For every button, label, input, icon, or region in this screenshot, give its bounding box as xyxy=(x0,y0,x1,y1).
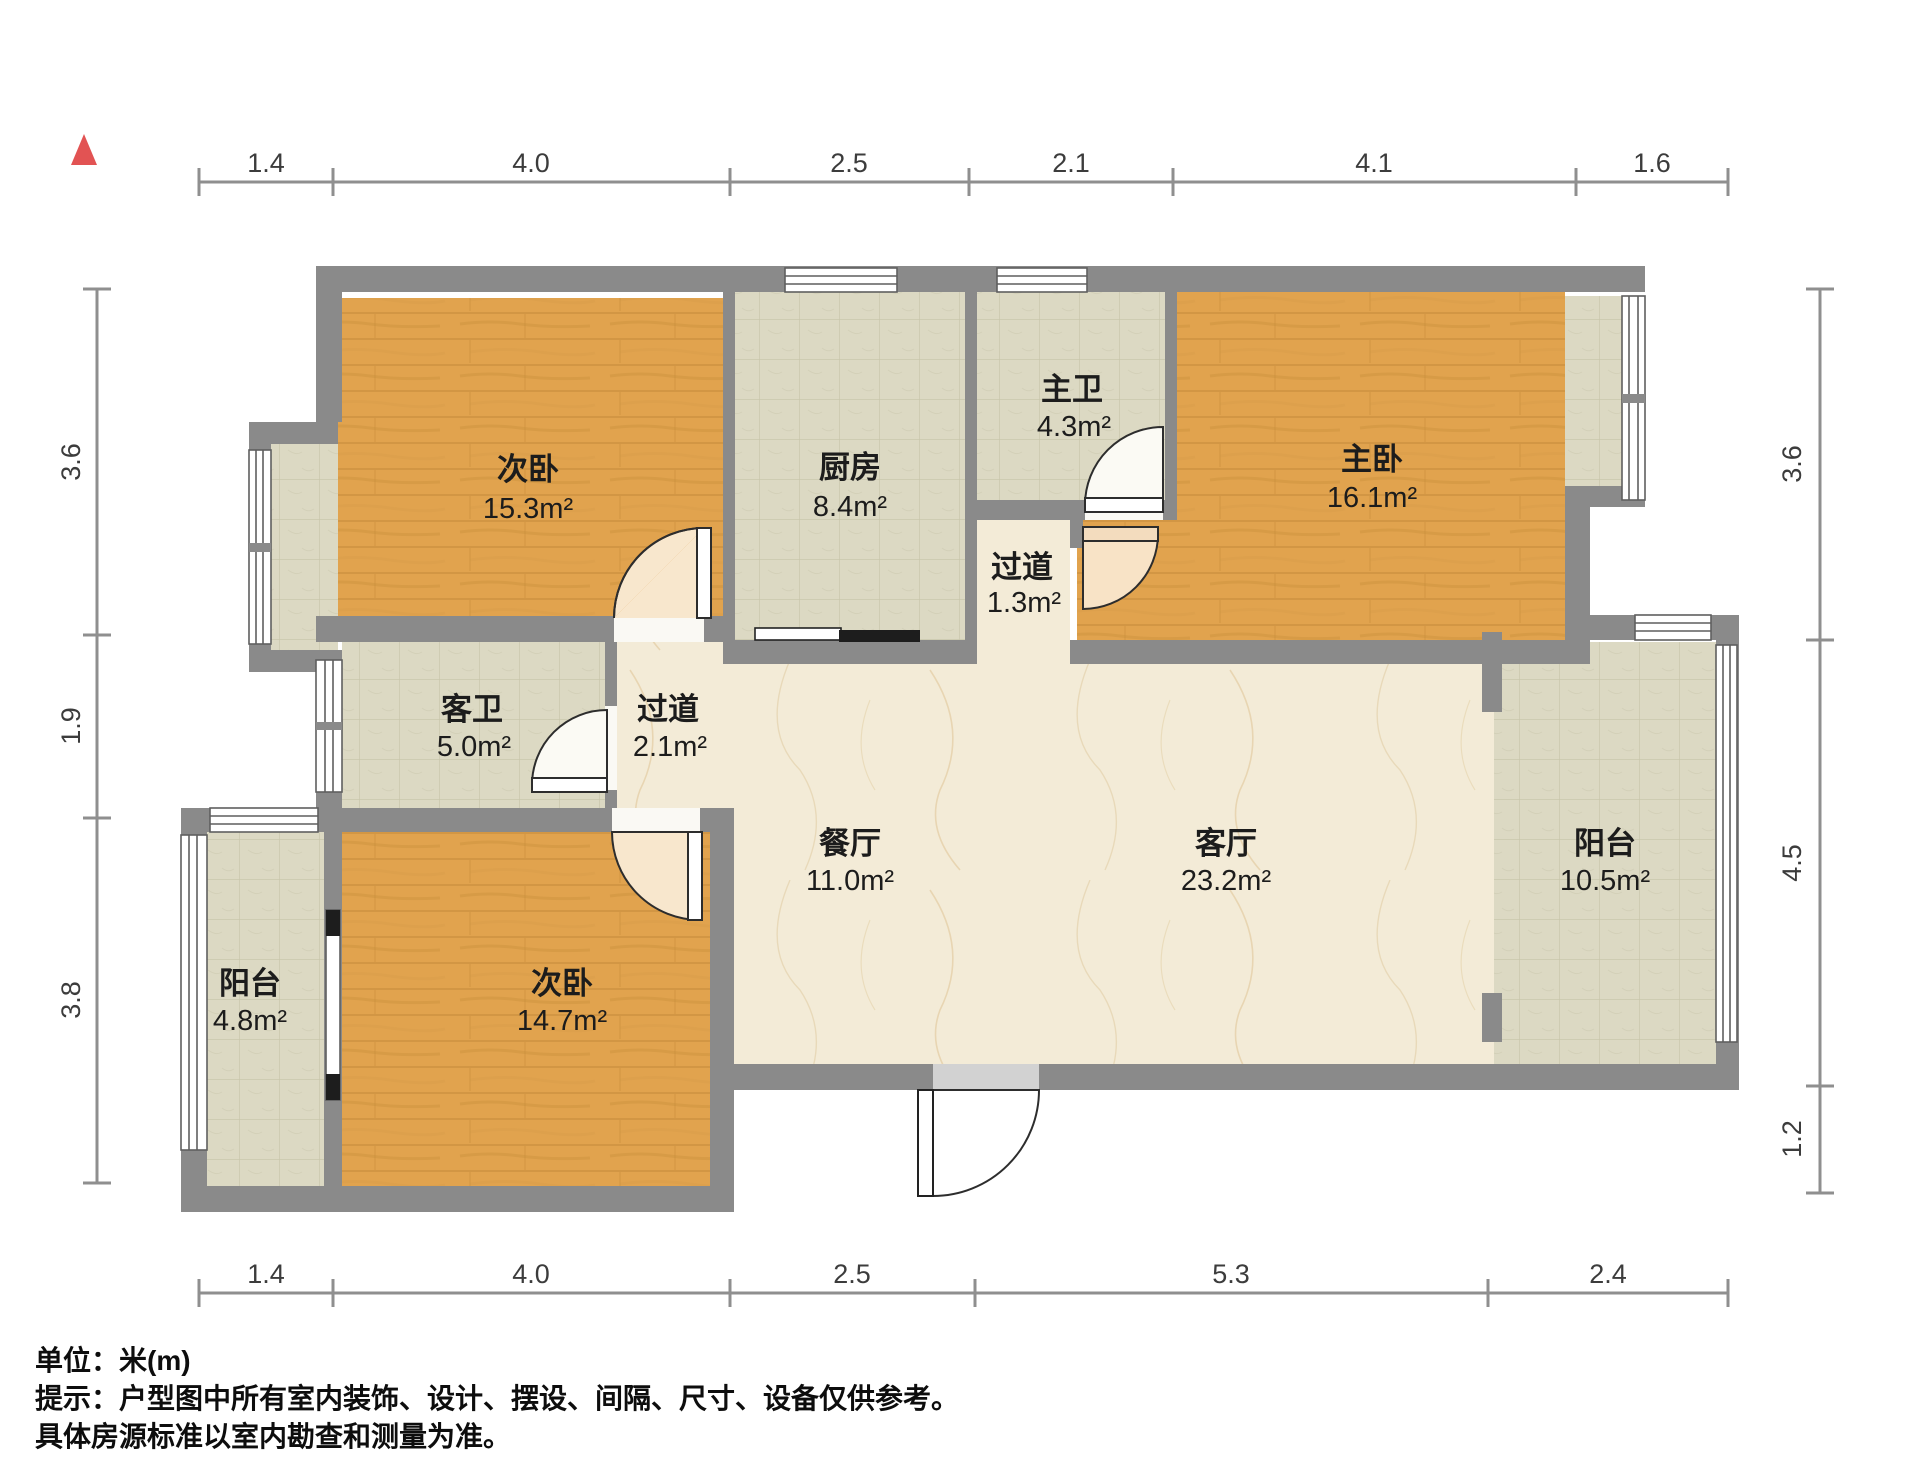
dim-bottom-3: 2.5 xyxy=(833,1259,871,1289)
wall-stub-balcony-top xyxy=(1482,632,1502,712)
wall-bed1-kitchen xyxy=(723,292,735,642)
room-area: 15.3m² xyxy=(483,493,574,525)
balcony-right-window-icon xyxy=(1716,645,1737,1042)
dim-right-3: 1.2 xyxy=(1777,1120,1807,1158)
wall-bottom-left xyxy=(181,1186,734,1212)
dim-bottom-1: 1.4 xyxy=(247,1259,285,1289)
room-area: 2.1m² xyxy=(633,731,707,763)
dim-top-5: 4.1 xyxy=(1355,148,1393,178)
dim-top-3: 2.5 xyxy=(830,148,868,178)
wall-bottom-center-b xyxy=(1039,1064,1739,1090)
wall-kitchen-right xyxy=(965,292,977,640)
balcony-right-top-window-icon xyxy=(1635,615,1711,640)
room-area: 8.4m² xyxy=(813,491,887,523)
dim-left-2: 1.9 xyxy=(56,707,86,745)
dim-top-2: 4.0 xyxy=(512,148,550,178)
bay-upper-left-window-icon xyxy=(249,450,271,644)
room-area: 16.1m² xyxy=(1327,482,1418,514)
room-name: 厨房 xyxy=(819,450,881,485)
room-name: 主卫 xyxy=(1041,372,1103,407)
dim-line-top xyxy=(199,168,1728,196)
balcony-left-window-icon xyxy=(181,835,207,1150)
footer-disclaimer-line1: 提示：户型图中所有室内装饰、设计、摆设、间隔、尺寸、设备仅供参考。 xyxy=(35,1382,959,1414)
dim-top-1: 1.4 xyxy=(247,148,285,178)
guestbath-window-icon xyxy=(316,660,342,792)
master-bay-window-icon xyxy=(1622,296,1645,500)
room-area: 11.0m² xyxy=(806,865,894,897)
master-bay-floor xyxy=(1565,296,1622,486)
dim-line-left xyxy=(83,289,111,1183)
opening-bed1 xyxy=(614,616,704,642)
room-name: 阳台 xyxy=(219,966,281,1001)
floors xyxy=(207,292,1716,1186)
room-name: 阳台 xyxy=(1574,826,1636,861)
dim-line-right xyxy=(1806,289,1834,1193)
dim-top-4: 2.1 xyxy=(1052,148,1090,178)
room-name: 主卧 xyxy=(1341,442,1403,477)
room-name: 过道 xyxy=(991,550,1053,585)
room-name: 客厅 xyxy=(1195,826,1257,861)
kitchen-window-icon xyxy=(785,268,897,292)
room-area: 4.3m² xyxy=(1037,411,1111,443)
footer-notes: 单位：米(m) 提示：户型图中所有室内装饰、设计、摆设、间隔、尺寸、设备仅供参考… xyxy=(35,1344,959,1452)
balcony-bedroom-divider-window-icon xyxy=(326,910,340,1100)
wall-bottom-center-a xyxy=(723,1064,933,1090)
room-area: 10.5m² xyxy=(1560,865,1651,897)
dim-right-1: 3.6 xyxy=(1777,445,1807,483)
hallway-small-floor xyxy=(977,520,1070,650)
dim-right-2: 4.5 xyxy=(1777,844,1807,882)
dim-bottom-5: 2.4 xyxy=(1589,1259,1627,1289)
dim-bottom-2: 4.0 xyxy=(512,1259,550,1289)
dim-bottom-4: 5.3 xyxy=(1212,1259,1250,1289)
wall-bed2-top-a xyxy=(316,808,612,832)
room-name: 过道 xyxy=(637,692,699,727)
wall-masterbath-bottom-b xyxy=(1163,500,1177,520)
wall-masterbath-right xyxy=(1165,292,1177,520)
wall-stub-hall xyxy=(1070,520,1083,548)
footer-unit-line: 单位：米(m) xyxy=(35,1344,191,1376)
dim-left-1: 3.6 xyxy=(56,443,86,481)
room-area: 4.8m² xyxy=(213,1005,287,1037)
entry-door-icon xyxy=(918,1090,1039,1196)
room-name: 客卫 xyxy=(441,692,503,727)
wall-masterbath-bottom-a xyxy=(977,500,1085,520)
masterbath-window-icon xyxy=(997,268,1087,292)
living-dining-floor xyxy=(617,642,1494,1064)
room-name: 次卧 xyxy=(497,452,559,487)
room-area: 1.3m² xyxy=(987,587,1061,619)
wall-bed2-top-b xyxy=(700,808,710,832)
dim-line-bottom xyxy=(199,1279,1728,1307)
wall-guestbath-right-a xyxy=(605,642,617,706)
wall-bed1-bottom-a xyxy=(316,616,614,642)
wall-stub-balcony-bottom xyxy=(1482,993,1502,1042)
entry-lintel xyxy=(933,1064,1039,1090)
wall-master-right xyxy=(1565,486,1590,664)
wall-center-a xyxy=(723,640,977,664)
room-area: 5.0m² xyxy=(437,731,511,763)
room-name: 餐厅 xyxy=(819,826,881,861)
room-area: 23.2m² xyxy=(1181,865,1272,897)
footer-disclaimer-line2: 具体房源标准以室内勘查和测量为准。 xyxy=(35,1420,511,1452)
wall-top xyxy=(316,266,1645,292)
wall-center-b xyxy=(1070,640,1590,664)
balcony-left-top-window-icon xyxy=(210,808,318,832)
wall-top-left xyxy=(316,266,342,422)
dim-top-6: 1.6 xyxy=(1633,148,1671,178)
room-label-hallway-small: 过道 1.3m² xyxy=(987,550,1061,619)
dim-left-3: 3.8 xyxy=(56,981,86,1019)
kitchen-sliding-door-icon xyxy=(755,628,920,642)
floor-plan-canvas: 次卧 15.3m² 厨房 8.4m² 主卫 4.3m² 主卧 16.1m² 过道… xyxy=(0,0,1920,1478)
north-triangle-icon xyxy=(71,134,97,165)
room-name: 次卧 xyxy=(531,966,593,1001)
room-area: 14.7m² xyxy=(517,1005,608,1037)
wall-bed2-right xyxy=(710,808,734,1212)
opening-bed2 xyxy=(612,808,700,832)
